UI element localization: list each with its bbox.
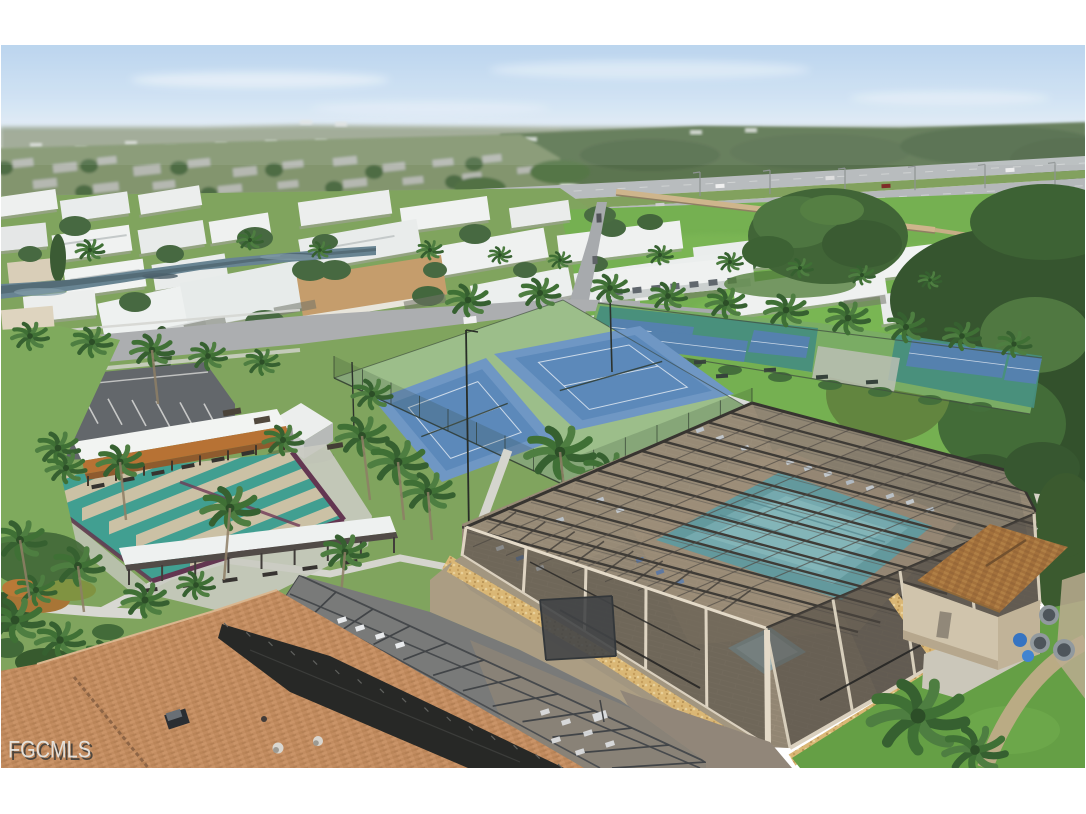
svg-text:FGCMLS: FGCMLS (8, 737, 91, 764)
